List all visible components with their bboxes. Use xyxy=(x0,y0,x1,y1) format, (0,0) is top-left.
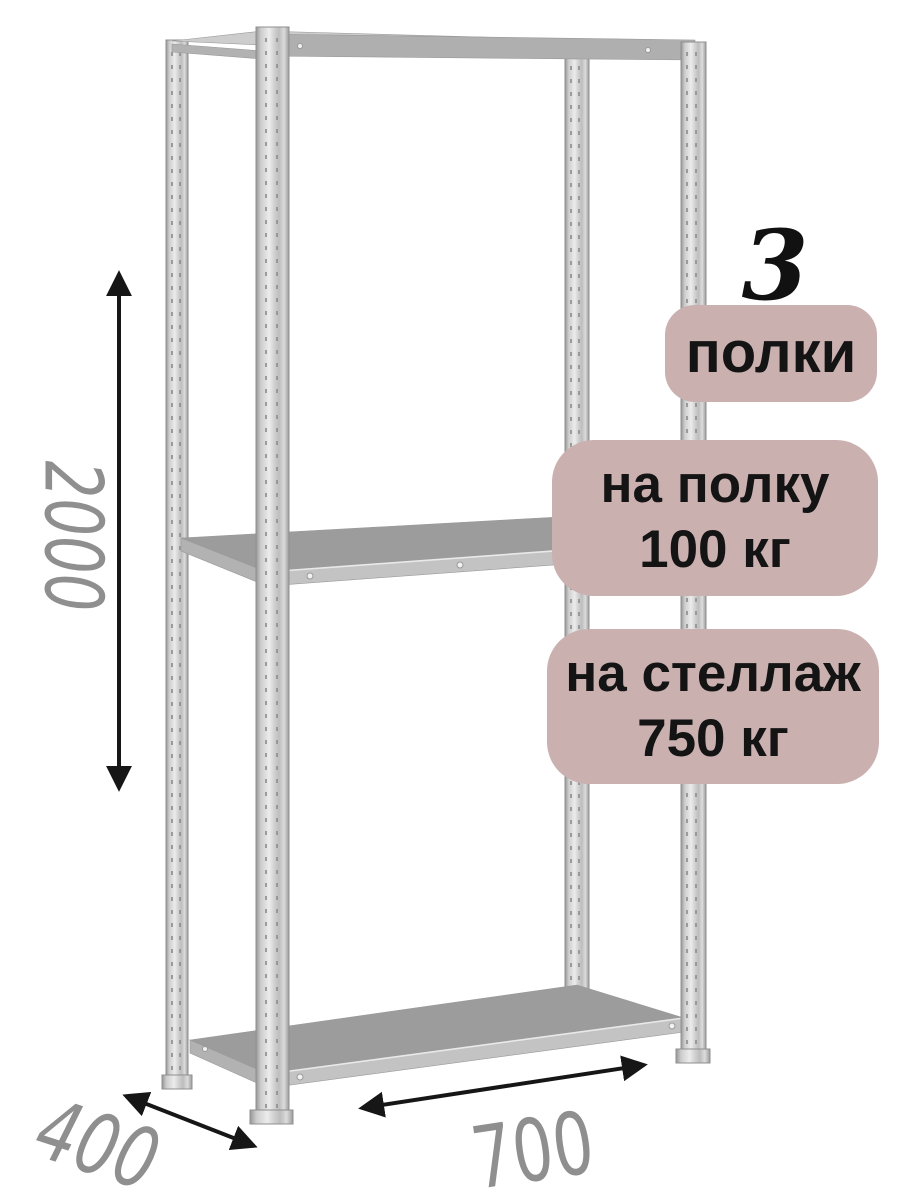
shelf-load-line1: на полку xyxy=(601,453,830,518)
shelves-count-number: 3 xyxy=(705,218,845,314)
post-front-left xyxy=(250,27,293,1124)
shelf-load-line2: 100 кг xyxy=(639,518,791,583)
shelves-count-badge: полки xyxy=(665,305,877,402)
rack-illustration: 2000 400 700 xyxy=(0,0,900,1200)
rack-load-badge: на стеллаж 750 кг xyxy=(547,629,879,784)
top-shelf xyxy=(172,31,695,60)
height-dimension-label: 2000 xyxy=(26,461,119,612)
product-image: 2000 400 700 3 полки на полку 100 кг на … xyxy=(0,0,900,1200)
shelves-count-badge-label: полки xyxy=(686,318,857,389)
post-back-left xyxy=(162,40,192,1089)
rack-load-line1: на стеллаж xyxy=(565,642,861,707)
depth-dimension-label: 400 xyxy=(24,1080,170,1200)
width-dimension-label: 700 xyxy=(465,1092,600,1200)
width-arrow xyxy=(362,1065,644,1108)
shelf-load-badge: на полку 100 кг xyxy=(552,440,878,596)
rack-load-line2: 750 кг xyxy=(637,707,789,772)
